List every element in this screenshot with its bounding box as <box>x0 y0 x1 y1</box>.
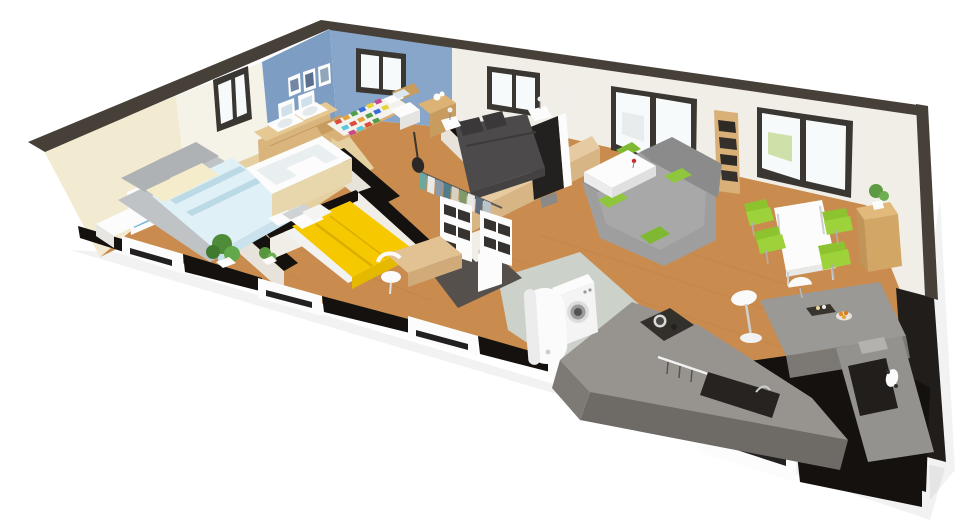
water-heater <box>523 287 568 366</box>
floorplan-render <box>0 0 960 532</box>
toy <box>434 94 441 101</box>
